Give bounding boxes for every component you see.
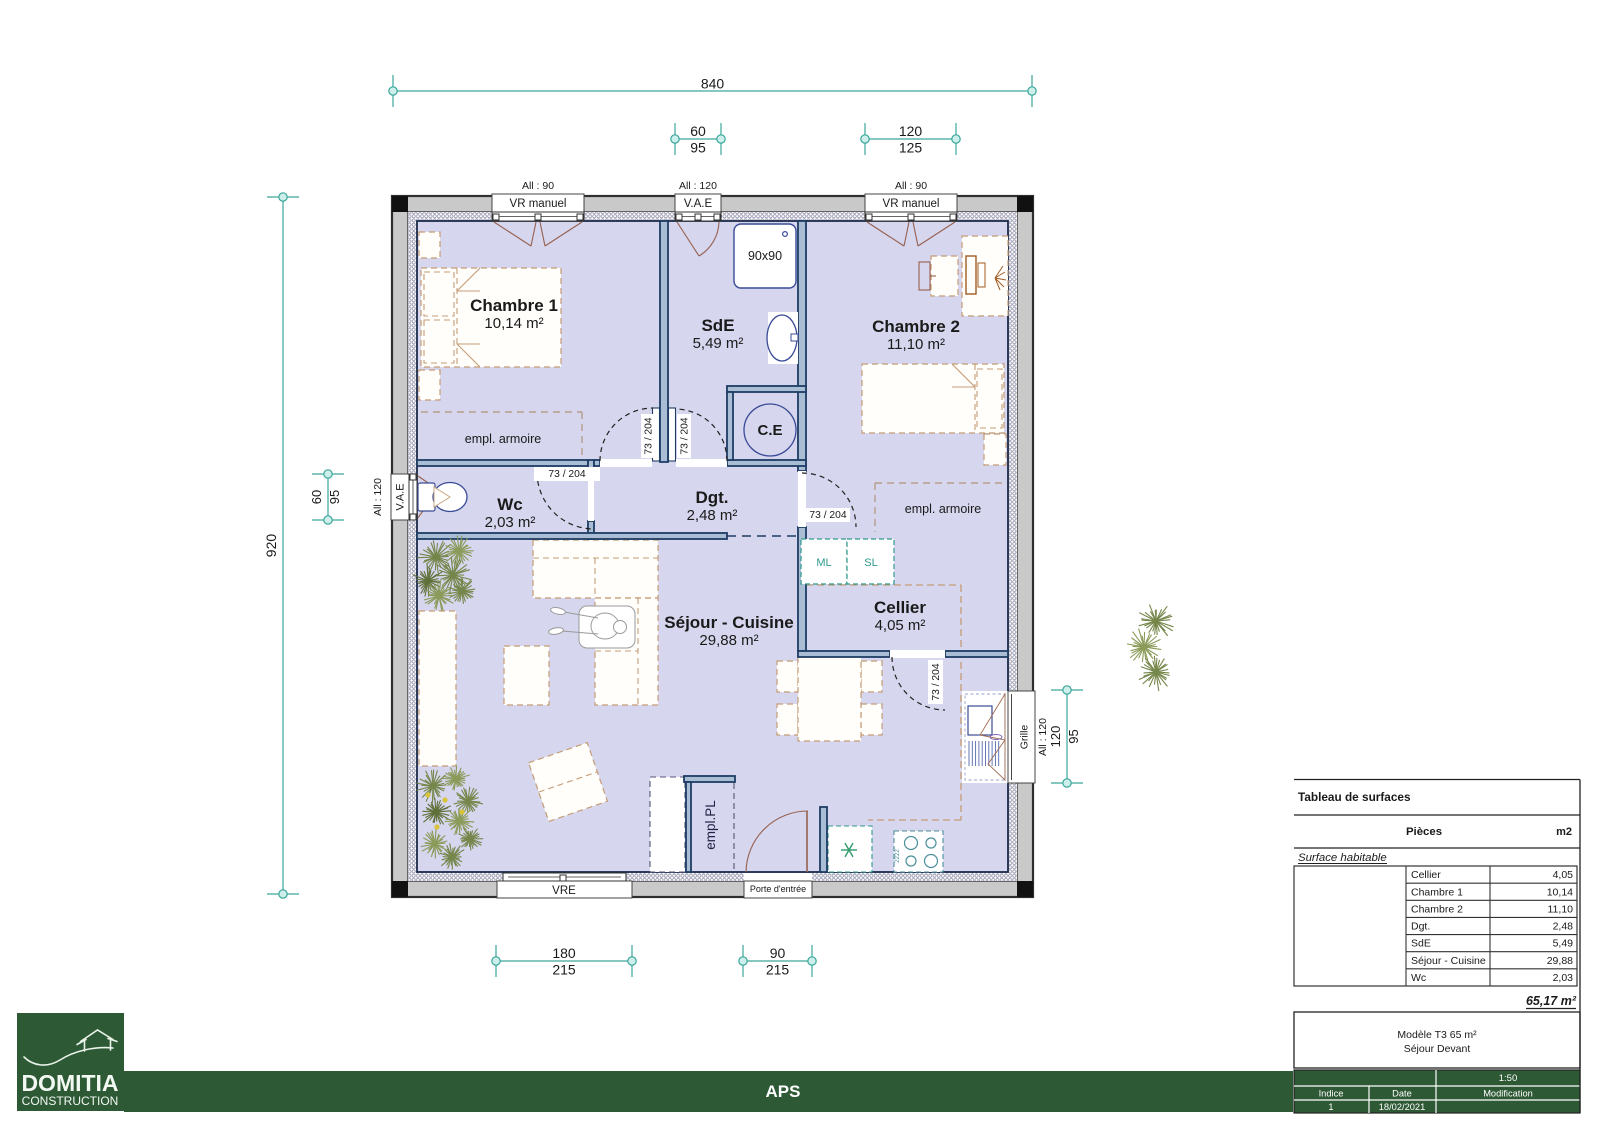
svg-text:65,17 m²: 65,17 m² [1526,994,1577,1008]
svg-text:18/02/2021: 18/02/2021 [1379,1102,1426,1112]
svg-text:Chambre 1: Chambre 1 [1411,886,1463,898]
svg-text:VRE: VRE [552,885,576,897]
svg-text:1: 1 [1328,1102,1333,1112]
svg-text:Wc: Wc [497,495,523,514]
svg-text:SdE: SdE [1411,938,1431,950]
svg-text:215: 215 [552,962,576,978]
svg-text:2,03: 2,03 [1553,972,1574,984]
svg-text:2222: 2222 [895,849,901,863]
svg-text:Chambre 1: Chambre 1 [470,296,558,315]
svg-text:Tableau de surfaces: Tableau de surfaces [1298,790,1411,804]
svg-text:Grille: Grille [1019,725,1031,750]
svg-text:29,88: 29,88 [1547,955,1573,967]
svg-text:95: 95 [690,140,706,156]
svg-text:empl. armoire: empl. armoire [905,502,981,516]
svg-text:10,14 m²: 10,14 m² [484,315,543,332]
svg-text:73 / 204: 73 / 204 [548,469,585,480]
svg-text:73 / 204: 73 / 204 [809,510,846,521]
svg-text:Dgt.: Dgt. [1411,921,1430,933]
svg-text:60: 60 [309,490,324,504]
svg-text:29,88 m²: 29,88 m² [699,632,758,649]
svg-text:11,10: 11,10 [1548,903,1574,915]
svg-text:Cellier: Cellier [874,598,926,617]
svg-text:180: 180 [552,945,576,961]
svg-text:120: 120 [899,123,923,139]
svg-text:4,05 m²: 4,05 m² [875,617,926,634]
svg-text:DOMITIA: DOMITIA [21,1070,118,1096]
svg-text:empl. armoire: empl. armoire [465,432,541,446]
svg-text:Dgt.: Dgt. [695,488,728,507]
svg-text:120: 120 [1048,726,1063,748]
svg-text:60: 60 [690,123,706,139]
svg-text:V.A.E: V.A.E [684,198,713,210]
svg-text:10,14: 10,14 [1547,886,1573,898]
svg-text:All : 120: All : 120 [372,478,384,516]
svg-text:All : 120: All : 120 [1037,718,1049,756]
svg-text:Surface habitable: Surface habitable [1298,852,1387,864]
svg-text:All : 90: All : 90 [895,180,927,192]
svg-text:SdE: SdE [701,316,734,335]
svg-text:SL: SL [864,557,877,569]
svg-text:ML: ML [816,557,831,569]
svg-text:125: 125 [899,140,923,156]
svg-text:CONSTRUCTION: CONSTRUCTION [22,1094,119,1108]
svg-text:Séjour - Cuisine: Séjour - Cuisine [664,613,793,632]
svg-text:5,49 m²: 5,49 m² [693,335,744,352]
svg-text:Modèle T3 65 m²: Modèle T3 65 m² [1397,1029,1477,1041]
svg-text:95: 95 [327,490,342,504]
svg-text:73 / 204: 73 / 204 [931,663,942,700]
svg-text:Séjour Devant: Séjour Devant [1404,1043,1471,1055]
svg-text:4,05: 4,05 [1553,869,1574,881]
svg-text:840: 840 [701,76,725,92]
svg-text:73 / 204: 73 / 204 [644,417,655,454]
svg-text:1:50: 1:50 [1499,1073,1518,1084]
svg-text:90: 90 [770,945,786,961]
svg-text:920: 920 [263,534,279,558]
svg-text:Pièces: Pièces [1406,826,1442,838]
svg-text:All : 90: All : 90 [522,180,554,192]
svg-text:empl.PL: empl.PL [703,800,718,850]
svg-text:m2: m2 [1556,826,1572,838]
svg-text:5,49: 5,49 [1553,938,1574,950]
svg-text:VR manuel: VR manuel [510,198,567,210]
svg-text:Modification: Modification [1483,1089,1533,1099]
svg-text:Cellier: Cellier [1411,869,1441,881]
svg-text:2,48 m²: 2,48 m² [687,507,738,524]
svg-text:V.A.E: V.A.E [395,483,407,510]
svg-text:Chambre 2: Chambre 2 [1411,903,1463,915]
svg-text:Séjour - Cuisine: Séjour - Cuisine [1411,955,1486,967]
svg-text:11,10 m²: 11,10 m² [887,336,945,353]
svg-text:Date: Date [1392,1089,1412,1099]
svg-text:Wc: Wc [1411,972,1426,984]
svg-text:Chambre 2: Chambre 2 [872,317,960,336]
svg-text:2,48: 2,48 [1553,921,1574,933]
svg-text:APS: APS [766,1082,801,1101]
svg-text:Indice: Indice [1319,1089,1344,1099]
svg-text:73 / 204: 73 / 204 [680,417,691,454]
svg-text:C.E: C.E [757,422,782,439]
svg-text:215: 215 [766,962,790,978]
svg-text:Porte d'entrée: Porte d'entrée [750,884,806,894]
svg-text:All : 120: All : 120 [679,180,717,192]
svg-text:2,03 m²: 2,03 m² [485,514,536,531]
svg-text:VR manuel: VR manuel [883,198,940,210]
svg-text:90x90: 90x90 [748,249,782,263]
svg-text:95: 95 [1066,729,1081,743]
